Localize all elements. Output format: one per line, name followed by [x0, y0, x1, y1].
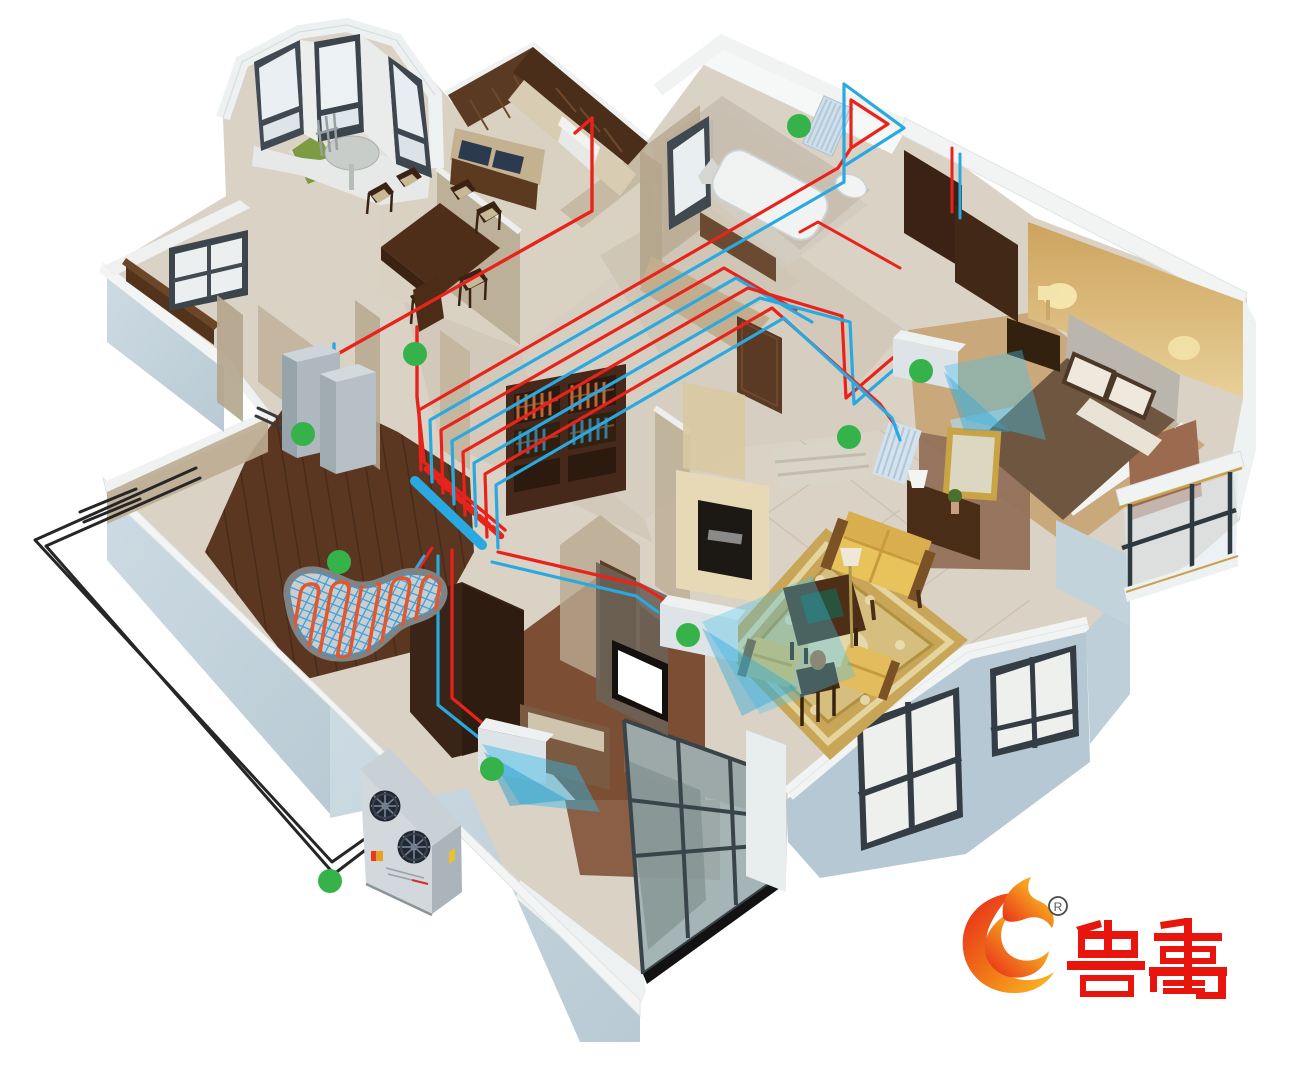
svg-text:R: R — [1054, 900, 1063, 914]
